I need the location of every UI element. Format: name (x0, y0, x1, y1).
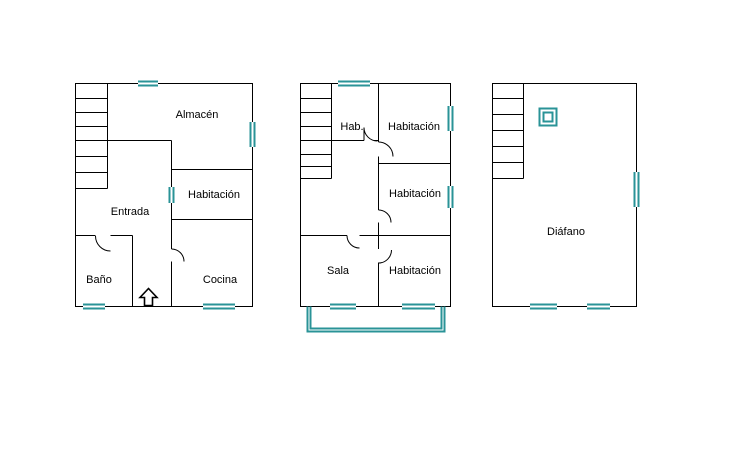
room-label-habitacion-top: Habitación (388, 121, 440, 133)
door-arc-habitacion-bottom (379, 250, 392, 263)
window-marker (402, 305, 435, 309)
room-label-bano: Baño (86, 274, 112, 286)
entrance-arrow-icon (140, 289, 157, 306)
floor-plan-middle (301, 82, 453, 332)
window-marker (330, 305, 356, 309)
window-marker (635, 172, 639, 207)
window-marker (449, 186, 453, 208)
window-marker (251, 122, 255, 147)
floor-plan-drawing: Almacén Habitación Entrada Baño Cocina H… (0, 0, 730, 450)
window-marker (530, 305, 557, 309)
skylight-marker (540, 109, 557, 126)
room-label-diafano: Diáfano (547, 226, 585, 238)
staircase (493, 84, 524, 179)
window-marker (449, 106, 453, 131)
exterior-walls (493, 84, 637, 307)
door-arc-habitacion-middle (379, 210, 392, 223)
floor-plan-right (493, 84, 639, 309)
room-label-cocina: Cocina (203, 274, 237, 286)
window-marker (83, 305, 105, 309)
window-marker (338, 82, 370, 86)
room-label-sala: Sala (327, 265, 349, 277)
room-label-habitacion-left: Habitación (188, 189, 240, 201)
window-marker (170, 187, 174, 203)
door-arc-bano (96, 236, 111, 251)
door-arc-sala (347, 236, 360, 249)
window-marker (587, 305, 610, 309)
room-label-hab: Hab. (340, 121, 363, 133)
room-label-entrada: Entrada (111, 206, 150, 218)
door-arc-hab (364, 128, 378, 142)
room-label-almacen: Almacén (176, 109, 219, 121)
room-label-habitacion-middle: Habitación (389, 188, 441, 200)
door-arc-habitacion-top (379, 142, 394, 157)
window-marker (138, 82, 158, 86)
door-arc-cocina (172, 249, 185, 262)
window-marker (203, 305, 235, 309)
staircase (301, 84, 332, 179)
room-label-habitacion-bottom: Habitación (389, 265, 441, 277)
balcony (308, 307, 445, 332)
plans-svg (0, 0, 730, 450)
staircase (76, 84, 108, 189)
